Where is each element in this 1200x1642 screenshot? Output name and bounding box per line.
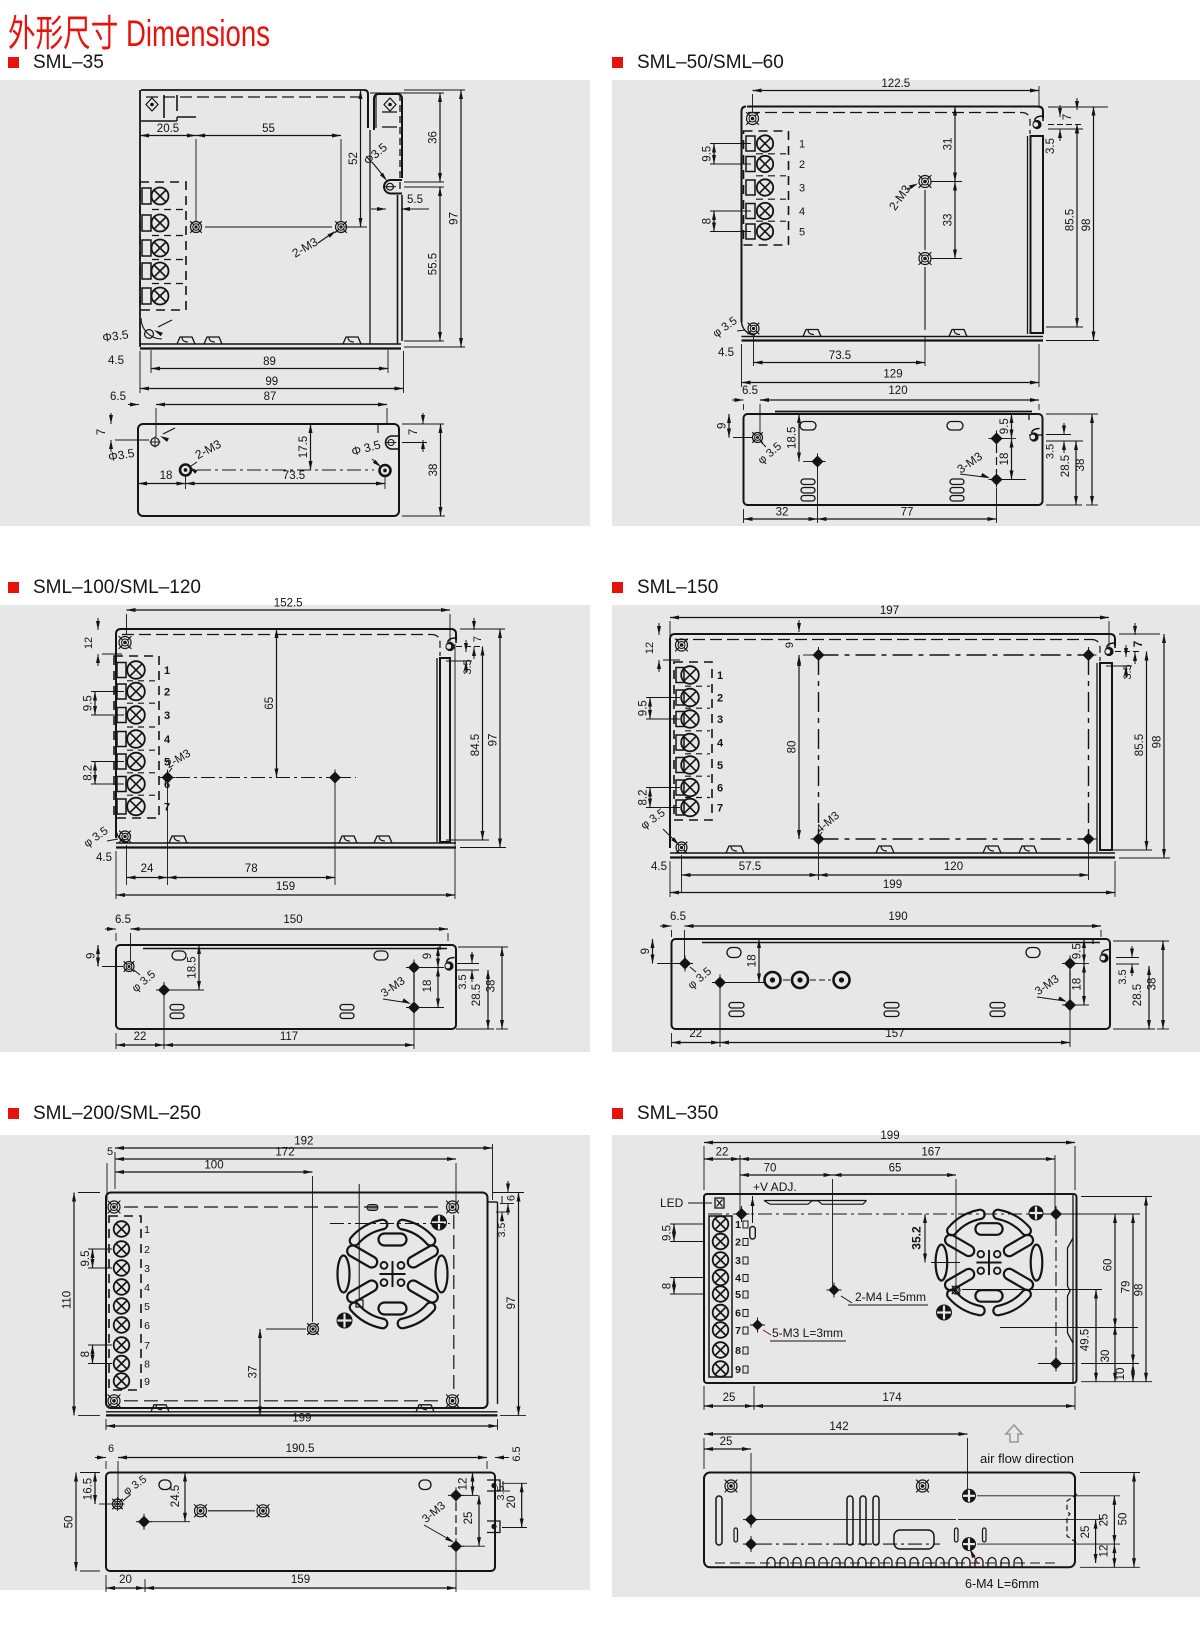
svg-text:38: 38: [1147, 978, 1159, 991]
svg-text:97: 97: [506, 1297, 518, 1310]
svg-text:199: 199: [883, 879, 902, 891]
svg-text:28.5: 28.5: [471, 984, 483, 1006]
svg-text:18.5: 18.5: [787, 427, 799, 449]
svg-text:199: 199: [880, 1130, 899, 1142]
svg-text:97: 97: [449, 212, 461, 225]
svg-text:25: 25: [1080, 1526, 1092, 1539]
svg-text:2: 2: [799, 159, 805, 171]
svg-text:36: 36: [428, 131, 440, 144]
svg-text:12: 12: [1099, 1545, 1111, 1558]
svg-text:7: 7: [96, 429, 108, 435]
svg-text:4: 4: [164, 734, 171, 746]
svg-text:150: 150: [283, 914, 302, 926]
svg-text:2: 2: [717, 693, 723, 705]
svg-text:SML–100/SML–120: SML–100/SML–120: [33, 577, 201, 598]
svg-text:99: 99: [265, 376, 278, 388]
svg-text:197: 197: [880, 605, 899, 617]
svg-text:192: 192: [294, 1136, 313, 1148]
svg-text:73.5: 73.5: [283, 470, 305, 482]
svg-text:84.5: 84.5: [470, 734, 482, 756]
svg-text:2: 2: [164, 687, 170, 699]
svg-text:8.2: 8.2: [83, 765, 95, 781]
svg-text:172: 172: [275, 1147, 294, 1159]
svg-text:8: 8: [80, 1351, 92, 1357]
svg-text:8: 8: [662, 1283, 674, 1289]
svg-text:9.5: 9.5: [80, 1251, 92, 1267]
svg-text:8.2: 8.2: [638, 790, 650, 806]
svg-text:18: 18: [1072, 978, 1084, 991]
svg-text:55.5: 55.5: [428, 253, 440, 275]
svg-text:4: 4: [735, 1273, 741, 1285]
svg-text:9: 9: [640, 948, 652, 954]
svg-text:31: 31: [943, 138, 955, 151]
svg-text:3.5: 3.5: [1122, 664, 1134, 679]
svg-text:89: 89: [263, 356, 276, 368]
svg-text:+V ADJ.: +V ADJ.: [753, 1180, 797, 1194]
svg-text:9.5: 9.5: [83, 695, 95, 711]
svg-text:3.5: 3.5: [496, 1223, 508, 1238]
svg-text:6: 6: [108, 1443, 114, 1455]
svg-text:air flow direction: air flow direction: [980, 1451, 1074, 1466]
svg-text:9.5: 9.5: [1072, 943, 1084, 959]
svg-text:2: 2: [735, 1237, 741, 1249]
svg-text:SML–200/SML–250: SML–200/SML–250: [33, 1103, 201, 1124]
svg-text:120: 120: [888, 385, 907, 397]
svg-text:6-M4 L=6mm: 6-M4 L=6mm: [965, 1577, 1039, 1591]
svg-text:85.5: 85.5: [1065, 209, 1077, 231]
svg-text:30: 30: [1100, 1350, 1112, 1363]
svg-text:174: 174: [882, 1392, 902, 1404]
svg-text:3: 3: [735, 1255, 741, 1267]
svg-text:5: 5: [107, 1146, 113, 1158]
svg-text:24: 24: [141, 863, 154, 875]
svg-text:12: 12: [644, 642, 656, 654]
svg-text:98: 98: [1152, 736, 1164, 749]
svg-text:28.5: 28.5: [1060, 455, 1072, 477]
svg-text:65: 65: [889, 1163, 902, 1175]
svg-text:100: 100: [204, 1160, 223, 1172]
svg-text:33: 33: [943, 214, 955, 227]
svg-text:50: 50: [64, 1516, 76, 1529]
svg-text:7: 7: [164, 802, 170, 814]
svg-text:60: 60: [1103, 1259, 1115, 1272]
svg-text:SML–50/SML–60: SML–50/SML–60: [637, 52, 784, 73]
svg-text:97: 97: [488, 734, 500, 747]
svg-text:1: 1: [164, 665, 170, 677]
svg-text:7: 7: [717, 803, 723, 815]
svg-text:9: 9: [717, 423, 729, 429]
svg-text:3: 3: [799, 183, 805, 195]
svg-text:20.5: 20.5: [157, 123, 179, 135]
svg-text:129: 129: [883, 369, 902, 381]
svg-text:167: 167: [921, 1147, 940, 1159]
svg-text:7: 7: [1062, 114, 1074, 120]
svg-text:9.5: 9.5: [662, 1225, 674, 1241]
svg-text:4.5: 4.5: [651, 861, 667, 873]
svg-text:18: 18: [999, 453, 1011, 466]
svg-text:外形尺寸 Dimensions: 外形尺寸 Dimensions: [8, 13, 270, 54]
svg-text:35.2: 35.2: [910, 1226, 924, 1250]
svg-text:85.5: 85.5: [1134, 734, 1146, 756]
svg-text:9.5: 9.5: [702, 146, 714, 162]
svg-text:5: 5: [799, 227, 805, 239]
svg-text:70: 70: [764, 1163, 777, 1175]
svg-text:6.5: 6.5: [742, 385, 758, 397]
svg-text:25: 25: [720, 1436, 733, 1448]
svg-text:18: 18: [422, 980, 434, 993]
svg-text:1: 1: [717, 670, 723, 682]
svg-text:4: 4: [717, 738, 724, 750]
svg-text:3: 3: [164, 710, 170, 722]
svg-text:199: 199: [292, 1413, 311, 1425]
svg-text:3: 3: [717, 714, 723, 726]
svg-text:6: 6: [735, 1308, 741, 1320]
svg-text:22: 22: [689, 1028, 702, 1040]
svg-text:8: 8: [702, 218, 714, 224]
svg-text:80: 80: [787, 741, 799, 754]
svg-text:98: 98: [1134, 1284, 1146, 1297]
svg-text:6: 6: [144, 1320, 150, 1332]
svg-text:SML–35: SML–35: [33, 52, 104, 73]
svg-text:8: 8: [735, 1345, 741, 1357]
svg-text:7: 7: [735, 1325, 741, 1337]
svg-text:152.5: 152.5: [274, 598, 303, 610]
svg-text:4.5: 4.5: [96, 852, 112, 864]
svg-text:50: 50: [1118, 1513, 1130, 1526]
svg-text:78: 78: [245, 863, 258, 875]
svg-text:9.5: 9.5: [999, 418, 1011, 434]
svg-text:117: 117: [280, 1031, 298, 1043]
svg-text:8: 8: [144, 1359, 150, 1371]
svg-text:28.5: 28.5: [1132, 984, 1144, 1006]
svg-text:87: 87: [264, 391, 277, 403]
svg-text:32: 32: [776, 507, 789, 519]
svg-text:16.5: 16.5: [83, 1478, 95, 1500]
svg-text:5: 5: [717, 760, 723, 772]
svg-text:157: 157: [885, 1028, 904, 1040]
svg-text:142: 142: [829, 1421, 848, 1433]
svg-text:9: 9: [422, 953, 434, 959]
svg-text:6.5: 6.5: [115, 914, 131, 926]
svg-text:38: 38: [1075, 459, 1087, 472]
svg-text:5: 5: [144, 1301, 150, 1313]
svg-text:9: 9: [784, 642, 796, 648]
svg-text:6: 6: [717, 783, 723, 795]
svg-text:65: 65: [264, 697, 276, 710]
svg-text:55: 55: [262, 123, 275, 135]
svg-text:159: 159: [276, 881, 295, 893]
svg-text:12: 12: [83, 637, 95, 649]
svg-text:10: 10: [1115, 1368, 1127, 1381]
svg-text:25: 25: [463, 1512, 475, 1525]
svg-text:7: 7: [1133, 641, 1145, 647]
svg-text:SML–150: SML–150: [637, 577, 718, 598]
svg-text:3.5: 3.5: [1045, 444, 1057, 459]
svg-text:52: 52: [348, 152, 360, 165]
svg-text:LED: LED: [660, 1196, 684, 1210]
svg-text:7: 7: [408, 429, 420, 435]
svg-text:122.5: 122.5: [881, 78, 910, 90]
svg-text:4: 4: [799, 206, 805, 218]
svg-text:77: 77: [901, 507, 914, 519]
svg-text:12: 12: [457, 1478, 469, 1491]
svg-text:120: 120: [944, 861, 963, 873]
svg-text:2: 2: [144, 1244, 150, 1256]
svg-text:3.5: 3.5: [462, 659, 474, 674]
svg-text:3.5: 3.5: [1045, 138, 1057, 154]
svg-text:7: 7: [472, 636, 484, 642]
svg-text:37: 37: [248, 1366, 260, 1379]
svg-text:6.5: 6.5: [110, 391, 126, 403]
svg-text:22: 22: [716, 1147, 729, 1159]
svg-text:6.5: 6.5: [511, 1446, 523, 1461]
svg-text:110: 110: [62, 1291, 74, 1309]
svg-text:3: 3: [144, 1263, 150, 1275]
svg-text:22: 22: [134, 1031, 147, 1043]
svg-text:25: 25: [723, 1392, 736, 1404]
svg-text:9: 9: [86, 953, 98, 959]
svg-text:18: 18: [747, 954, 759, 967]
svg-text:7: 7: [144, 1340, 150, 1352]
svg-text:5: 5: [735, 1289, 741, 1301]
svg-text:57.5: 57.5: [739, 861, 761, 873]
svg-text:5.5: 5.5: [407, 194, 423, 206]
svg-text:9: 9: [735, 1364, 741, 1376]
svg-text:190.5: 190.5: [286, 1443, 315, 1455]
svg-text:73.5: 73.5: [829, 350, 851, 362]
svg-text:98: 98: [1081, 219, 1093, 232]
svg-text:2-M4 L=5mm: 2-M4 L=5mm: [855, 1290, 926, 1304]
svg-text:24.5: 24.5: [170, 1485, 182, 1507]
svg-text:9: 9: [144, 1376, 150, 1388]
svg-text:9.5: 9.5: [638, 700, 650, 716]
svg-text:190: 190: [888, 911, 907, 923]
svg-text:4.5: 4.5: [718, 347, 734, 359]
svg-text:49.5: 49.5: [1080, 1329, 1092, 1351]
svg-text:1: 1: [144, 1224, 150, 1236]
svg-text:38: 38: [486, 980, 498, 993]
svg-text:3.5: 3.5: [457, 974, 469, 989]
svg-text:4.5: 4.5: [108, 355, 124, 367]
svg-text:6.5: 6.5: [670, 911, 686, 923]
svg-text:18.5: 18.5: [187, 956, 199, 978]
svg-text:3.5: 3.5: [1117, 969, 1129, 984]
svg-text:1: 1: [799, 139, 805, 151]
svg-text:1: 1: [735, 1219, 741, 1231]
svg-text:20: 20: [119, 1574, 132, 1586]
svg-text:4: 4: [144, 1282, 150, 1294]
svg-text:38: 38: [428, 464, 440, 477]
svg-text:20: 20: [506, 1496, 518, 1509]
svg-text:159: 159: [291, 1574, 310, 1586]
svg-text:17.5: 17.5: [298, 436, 310, 458]
svg-text:79: 79: [1121, 1281, 1133, 1294]
svg-text:SML–350: SML–350: [637, 1103, 718, 1124]
svg-text:5-M3 L=3mm: 5-M3 L=3mm: [772, 1326, 843, 1340]
svg-text:6: 6: [506, 1195, 518, 1201]
svg-text:18: 18: [160, 470, 173, 482]
